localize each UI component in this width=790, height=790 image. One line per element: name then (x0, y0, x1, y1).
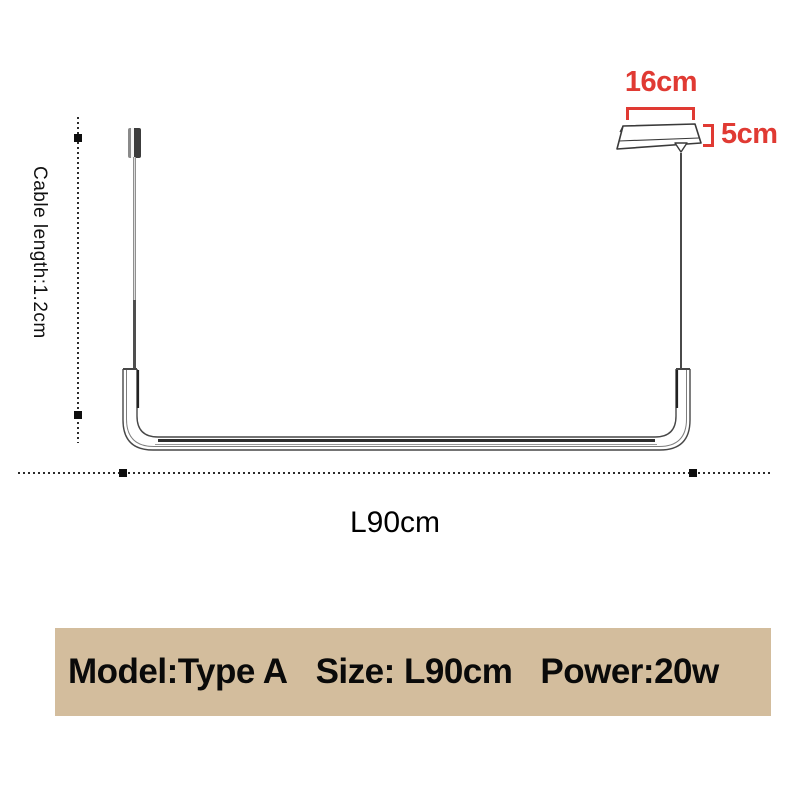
lamp-length-label: L90cm (330, 506, 460, 540)
canopy-height-bracket (703, 124, 714, 147)
product-dimension-diagram: Cable length:1.2cm 16cm 5cm L90cm Model:… (0, 0, 790, 790)
dimension-marker-bottom (74, 411, 82, 419)
canopy-width-bracket (626, 107, 695, 120)
left-cable-connector (128, 128, 141, 158)
canopy-width-label: 16cm (620, 66, 702, 99)
spec-power: Power:20w (540, 652, 718, 692)
ceiling-canopy-drawing (610, 115, 715, 165)
lamp-length-dimension-line (18, 472, 770, 474)
cable-length-dimension-line (77, 117, 79, 443)
spec-size: Size: L90cm (316, 652, 513, 692)
spec-banner: Model:Type A Size: L90cm Power:20w (55, 628, 771, 716)
left-suspension-cable-upper (133, 157, 136, 301)
dimension-marker-right (689, 469, 697, 477)
dimension-marker-top (74, 134, 82, 142)
lamp-body-drawing (115, 360, 700, 465)
spec-model: Model:Type A (68, 652, 288, 692)
right-suspension-cable (680, 153, 682, 370)
dimension-marker-left (119, 469, 127, 477)
cable-length-label: Cable length:1.2cm (28, 166, 50, 336)
canopy-height-label: 5cm (721, 118, 778, 151)
